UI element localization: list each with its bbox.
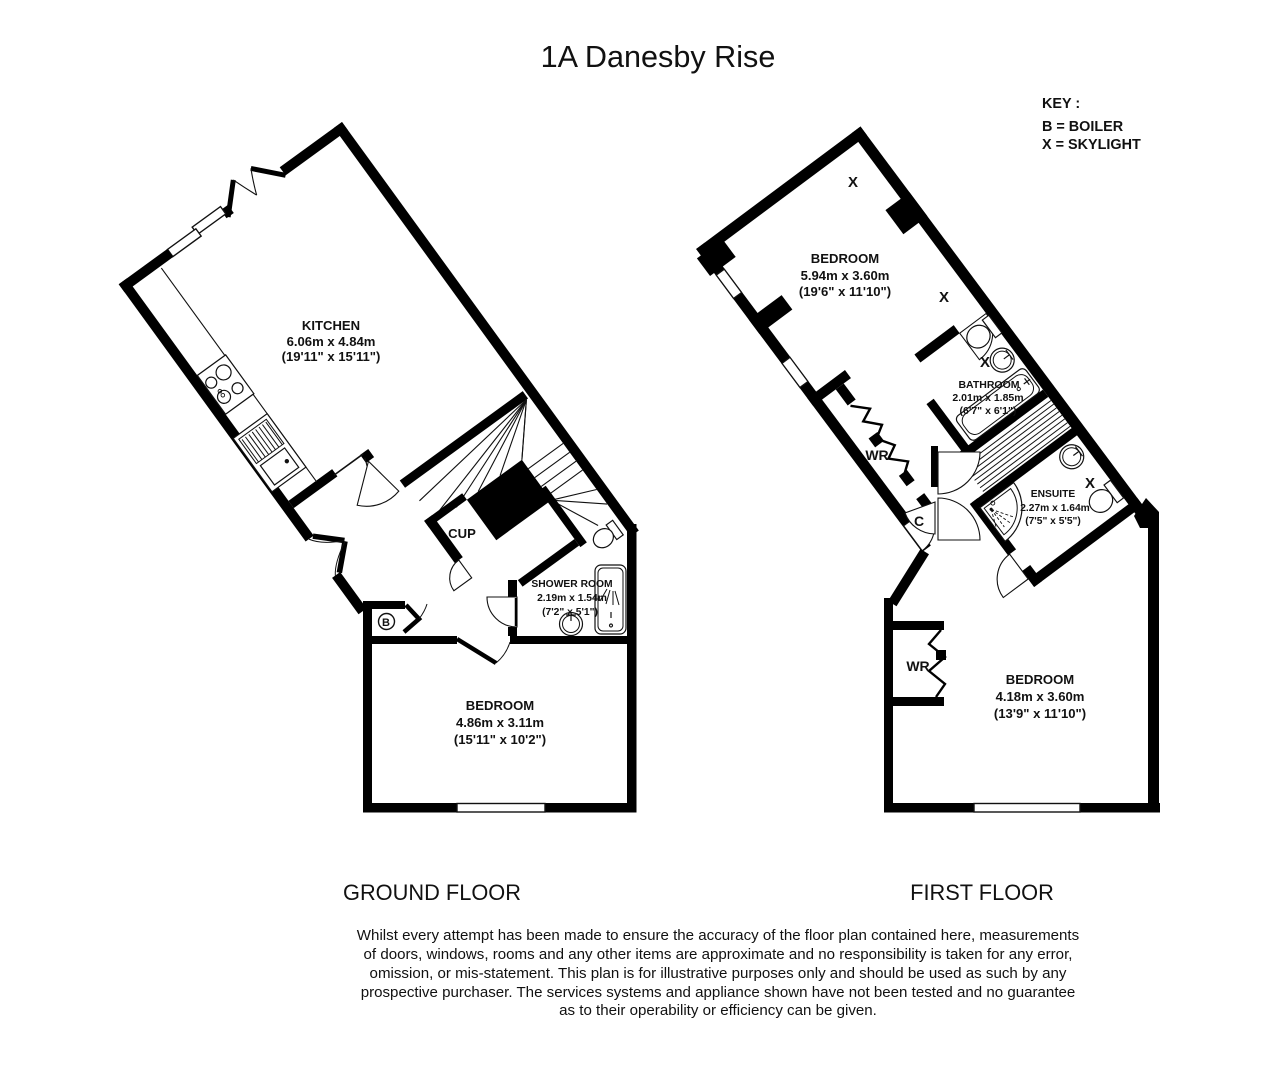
- svg-text:(7'5" x 5'5"): (7'5" x 5'5"): [1025, 516, 1081, 527]
- svg-text:WR: WR: [865, 447, 888, 463]
- svg-text:B: B: [382, 617, 390, 629]
- svg-text:(15'11" x 10'2"): (15'11" x 10'2"): [454, 732, 546, 747]
- svg-text:B = BOILER: B = BOILER: [1042, 119, 1124, 135]
- svg-text:6.06m x 4.84m: 6.06m x 4.84m: [287, 334, 376, 349]
- svg-text:2.01m x 1.85m: 2.01m x 1.85m: [952, 392, 1023, 404]
- svg-text:BEDROOM: BEDROOM: [811, 251, 879, 266]
- svg-text:X: X: [980, 354, 990, 371]
- svg-text:X: X: [939, 289, 949, 306]
- svg-text:1A Danesby Rise: 1A Danesby Rise: [541, 40, 776, 74]
- svg-text:BEDROOM: BEDROOM: [466, 698, 534, 713]
- svg-text:X: X: [848, 174, 858, 191]
- svg-text:KEY :: KEY :: [1042, 96, 1080, 112]
- svg-text:BATHROOM: BATHROOM: [958, 379, 1019, 391]
- svg-text:Whilst every attempt has been: Whilst every attempt has been made to en…: [357, 927, 1079, 944]
- svg-text:(13'9" x 11'10"): (13'9" x 11'10"): [994, 706, 1086, 721]
- svg-text:as to their operability or eff: as to their operability or efficiency ca…: [559, 1002, 877, 1019]
- svg-text:4.86m x 3.11m: 4.86m x 3.11m: [456, 715, 544, 730]
- svg-text:X: X: [1085, 475, 1095, 492]
- svg-text:CUP: CUP: [448, 526, 476, 541]
- svg-text:omission, or mis-statement. Th: omission, or mis-statement. This plan is…: [370, 965, 1067, 982]
- svg-text:X = SKYLIGHT: X = SKYLIGHT: [1042, 137, 1141, 153]
- svg-text:GROUND FLOOR: GROUND FLOOR: [343, 880, 521, 905]
- svg-text:prospective purchaser. The ser: prospective purchaser. The services syst…: [361, 984, 1076, 1001]
- svg-text:2.27m x 1.64m: 2.27m x 1.64m: [1020, 503, 1090, 514]
- svg-text:4.18m x 3.60m: 4.18m x 3.60m: [996, 689, 1085, 704]
- svg-text:C: C: [914, 513, 924, 529]
- svg-text:(19'11" x 15'11"): (19'11" x 15'11"): [282, 349, 381, 364]
- svg-text:(19'6" x 11'10"): (19'6" x 11'10"): [799, 284, 891, 299]
- svg-text:FIRST FLOOR: FIRST FLOOR: [910, 880, 1054, 905]
- svg-text:of doors, windows, rooms and a: of doors, windows, rooms and any other i…: [364, 946, 1073, 963]
- svg-text:(7'2" x 5'1"): (7'2" x 5'1"): [542, 607, 598, 618]
- svg-text:SHOWER ROOM: SHOWER ROOM: [531, 579, 612, 590]
- svg-text:WR: WR: [906, 658, 929, 674]
- svg-text:KITCHEN: KITCHEN: [302, 318, 360, 333]
- svg-text:BEDROOM: BEDROOM: [1006, 672, 1074, 687]
- svg-text:2.19m x 1.54m: 2.19m x 1.54m: [537, 593, 607, 604]
- svg-text:5.94m x 3.60m: 5.94m x 3.60m: [801, 268, 890, 283]
- svg-text:(6'7" x 6'1"): (6'7" x 6'1"): [960, 405, 1017, 417]
- svg-text:ENSUITE: ENSUITE: [1031, 489, 1076, 500]
